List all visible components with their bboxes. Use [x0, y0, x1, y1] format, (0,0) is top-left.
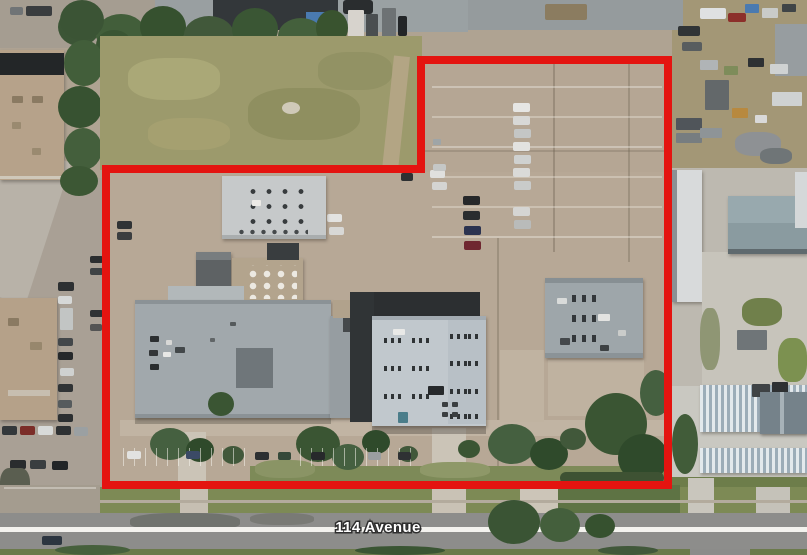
building-shadow: [372, 426, 486, 434]
rooftop-unit: [452, 412, 458, 417]
car: [368, 452, 381, 460]
car: [463, 211, 480, 220]
rooftop-unit: [166, 340, 172, 345]
car: [463, 196, 480, 205]
roof-vents: [384, 338, 401, 343]
left-lot-pavement: [0, 485, 100, 514]
car: [514, 181, 531, 190]
roof-vents: [412, 366, 429, 371]
tree: [64, 40, 104, 86]
stall-lines: [432, 116, 662, 118]
warehouse-roof-tan: [0, 298, 57, 420]
shed: [382, 8, 396, 38]
grass-patch: [420, 462, 490, 478]
debris: [770, 64, 788, 74]
roof-vents: [412, 338, 429, 343]
stall-lines: [432, 236, 662, 238]
car: [329, 227, 344, 235]
field-patch: [318, 52, 392, 90]
dirt-patch: [282, 102, 300, 114]
rooftop-unit: [175, 347, 185, 353]
rooftop-unit: [618, 330, 626, 336]
car: [90, 324, 102, 331]
car: [117, 221, 132, 229]
car: [52, 461, 68, 470]
road-center-line: [0, 527, 807, 532]
car: [327, 214, 342, 222]
car: [38, 426, 53, 435]
car: [58, 384, 73, 392]
stall-lines: [432, 176, 662, 178]
debris: [748, 58, 764, 67]
warehouse-roof: [795, 172, 807, 228]
car: [127, 451, 141, 459]
rooftop-unit: [598, 314, 610, 321]
car: [20, 426, 35, 435]
debris: [762, 8, 778, 18]
roof-dark-section: [350, 292, 374, 422]
rooftop-unit: [12, 122, 21, 129]
shed: [705, 80, 729, 110]
driveway: [688, 478, 714, 514]
debris: [745, 4, 759, 13]
roof-edge: [545, 353, 643, 358]
car: [42, 536, 62, 545]
roof-vents: [468, 334, 482, 339]
car: [58, 282, 74, 291]
hedge: [560, 472, 664, 484]
tree-row: [598, 546, 658, 555]
sidewalk-line: [100, 500, 807, 503]
roof-vents: [572, 295, 602, 302]
pavement-joint: [424, 150, 666, 152]
cart: [433, 139, 441, 145]
debris: [755, 115, 767, 123]
rooftop-unit: [452, 402, 458, 407]
stall-lines: [0, 176, 64, 179]
car: [30, 460, 46, 469]
tree: [540, 508, 580, 542]
car: [311, 452, 325, 460]
roof-vents: [450, 334, 467, 339]
building-shadow: [135, 418, 331, 424]
car: [514, 155, 531, 164]
pavement-joint: [553, 62, 555, 252]
car: [2, 426, 17, 435]
tree: [585, 514, 615, 538]
car: [433, 164, 446, 171]
grass-patch: [700, 308, 720, 370]
skylight-teal: [398, 412, 408, 423]
stall-lines: [432, 206, 662, 208]
rooftop-unit: [150, 364, 159, 370]
stall-lines: [432, 86, 662, 88]
car: [90, 256, 103, 263]
roof-vents: [468, 361, 482, 366]
rooftop-unit: [428, 386, 444, 395]
roof-ridge: [780, 392, 784, 434]
roof-edge: [545, 278, 643, 283]
tree: [640, 370, 672, 416]
tree: [60, 166, 98, 196]
rooftop-unit: [8, 318, 19, 326]
tree-shadow: [250, 513, 314, 525]
rooftop-unit: [150, 336, 159, 342]
container: [676, 118, 702, 130]
roof-edge: [672, 170, 677, 302]
car: [514, 129, 531, 138]
container: [700, 128, 722, 138]
car: [58, 296, 72, 304]
van: [430, 170, 445, 178]
car: [513, 142, 530, 151]
car: [58, 414, 73, 422]
rooftop-unit: [442, 412, 448, 417]
debris: [732, 108, 748, 118]
car: [60, 368, 74, 376]
verge-patch: [690, 549, 750, 555]
grass-patch: [742, 298, 782, 326]
truck: [700, 8, 726, 19]
tree: [488, 500, 540, 544]
roof-patch: [545, 4, 587, 20]
tree: [458, 440, 480, 458]
car: [58, 338, 73, 346]
car: [74, 427, 88, 436]
debris: [782, 4, 796, 12]
tree: [672, 414, 698, 474]
rooftop-unit: [30, 342, 42, 350]
roof-vents: [236, 228, 308, 236]
trailer: [772, 92, 802, 106]
car: [278, 452, 291, 460]
rooftop-unit: [32, 96, 43, 103]
car: [117, 232, 132, 240]
tree: [58, 86, 102, 128]
roof-edge: [372, 316, 486, 320]
roof-vents: [468, 389, 482, 394]
storage-roof: [700, 448, 807, 473]
tree: [64, 128, 102, 170]
roof-vents: [450, 361, 467, 366]
rooftop-unit: [600, 345, 609, 351]
car: [682, 42, 702, 51]
roof-strip: [196, 252, 231, 260]
car: [728, 13, 746, 22]
apron: [500, 350, 544, 422]
field-patch: [148, 118, 230, 150]
junk-pile: [760, 148, 792, 164]
skylight-grid: [243, 265, 297, 299]
tree-row: [355, 546, 445, 555]
car: [678, 26, 700, 36]
rooftop-unit: [32, 148, 41, 155]
satellite-map-view[interactable]: 114 Avenue: [0, 0, 807, 555]
car: [464, 226, 481, 235]
rooftop-unit: [210, 338, 215, 342]
roof-edge-dark: [0, 53, 64, 75]
rooftop-unit: [393, 329, 405, 335]
car: [514, 220, 531, 229]
car: [401, 173, 413, 181]
rooftop-unit: [149, 350, 158, 356]
roof-vents: [412, 394, 429, 399]
rooftop-unit: [230, 322, 236, 326]
car: [513, 168, 530, 177]
rooftop-unit: [442, 402, 448, 407]
stall-lines: [432, 146, 662, 148]
car: [58, 352, 73, 360]
field-patch: [248, 88, 360, 140]
car: [398, 16, 407, 36]
tree: [488, 424, 536, 464]
roof-vents: [468, 414, 482, 419]
roof-inner-dark: [236, 348, 273, 388]
car: [513, 103, 530, 112]
shed: [737, 330, 767, 350]
car: [90, 268, 103, 275]
car: [10, 7, 23, 15]
roof-vents: [384, 366, 401, 371]
car: [90, 310, 103, 317]
roof-edge: [135, 300, 331, 304]
car: [513, 207, 530, 216]
car: [398, 452, 411, 460]
pavement-joint: [628, 62, 630, 262]
roof-vents: [384, 394, 401, 399]
rooftop-unit: [557, 298, 567, 304]
roof-vents: [572, 335, 602, 342]
rooftop-unit: [252, 200, 261, 206]
debris: [724, 66, 738, 75]
car: [58, 400, 72, 408]
car: [513, 116, 530, 125]
van: [432, 182, 447, 190]
tree: [208, 392, 234, 416]
rooftop-unit: [12, 96, 23, 103]
tree: [60, 0, 104, 40]
stall-lines: [4, 487, 96, 489]
debris: [700, 60, 718, 70]
rooftop-unit: [163, 352, 171, 357]
car: [26, 6, 52, 16]
roof-dark-section: [267, 243, 299, 260]
car: [56, 426, 71, 435]
grass-patch: [778, 338, 807, 382]
roof-eave: [728, 249, 807, 254]
car: [186, 451, 200, 459]
car: [464, 241, 481, 250]
car: [255, 452, 269, 460]
roof-vents: [450, 389, 467, 394]
field-patch: [128, 58, 220, 100]
trailer: [60, 308, 73, 330]
container: [676, 133, 702, 143]
tree-row: [55, 545, 130, 555]
rooftop-unit: [560, 338, 570, 345]
roof-line: [8, 390, 50, 396]
tree: [560, 428, 586, 450]
